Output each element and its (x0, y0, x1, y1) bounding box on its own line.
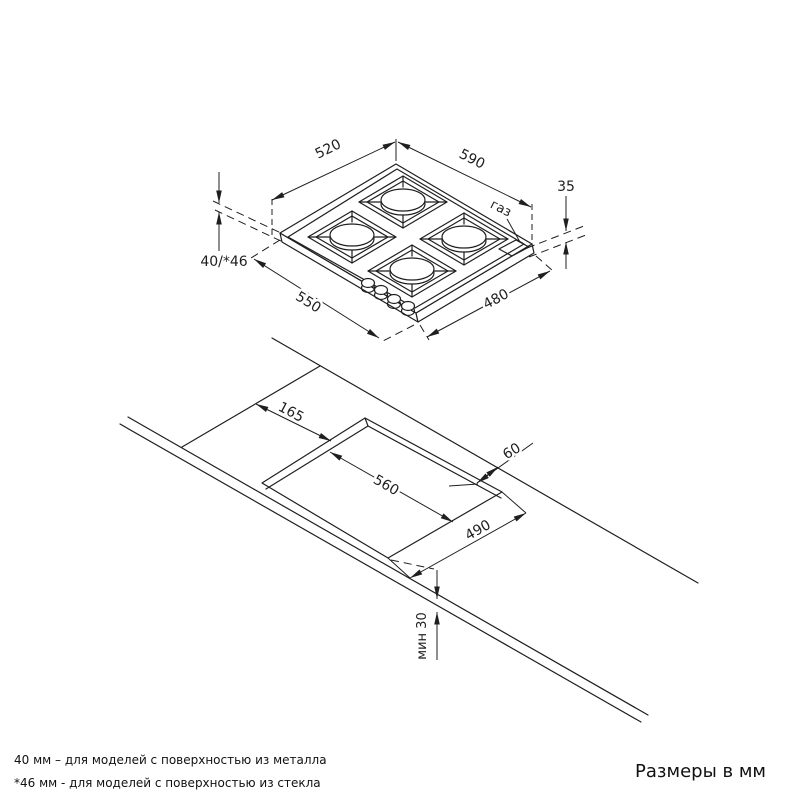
dim-550-label: 550 (293, 289, 324, 317)
drawing-svg: 520 590 550 480 35 газ 40/*46 (0, 0, 800, 800)
dim-590-label: 590 (456, 146, 487, 172)
dim-560-label: 560 (370, 472, 401, 499)
countertop-back-edge (272, 338, 698, 583)
countertop-left-edge (182, 366, 320, 447)
footnote-metal: 40 мм – для моделей с поверхностью из ме… (14, 753, 327, 767)
gas-label: газ (488, 197, 514, 220)
footnote-glass: *46 мм - для моделей с поверхностью из с… (14, 776, 321, 790)
dim-165-label: 165 (275, 399, 306, 426)
dim-480-label: 480 (481, 286, 512, 313)
dim-60-label: 60 (500, 440, 524, 463)
countertop-bottom-edge (120, 424, 641, 722)
countertop-front-edge (128, 417, 648, 715)
dim-min30-label: мин 30 (415, 612, 430, 659)
countertop-cutout-view (120, 338, 698, 722)
dim-40-46-label: 40/*46 (200, 254, 247, 270)
dim-35-label: 35 (557, 179, 575, 195)
dim-520-label: 520 (313, 136, 344, 162)
units-note: Размеры в мм (635, 761, 766, 782)
footer-notes: 40 мм – для моделей с поверхностью из ме… (14, 753, 766, 790)
technical-drawing-page: 520 590 550 480 35 газ 40/*46 (0, 0, 800, 800)
cutout-dimensions: 165 560 60 490 мин 30 (256, 399, 533, 660)
